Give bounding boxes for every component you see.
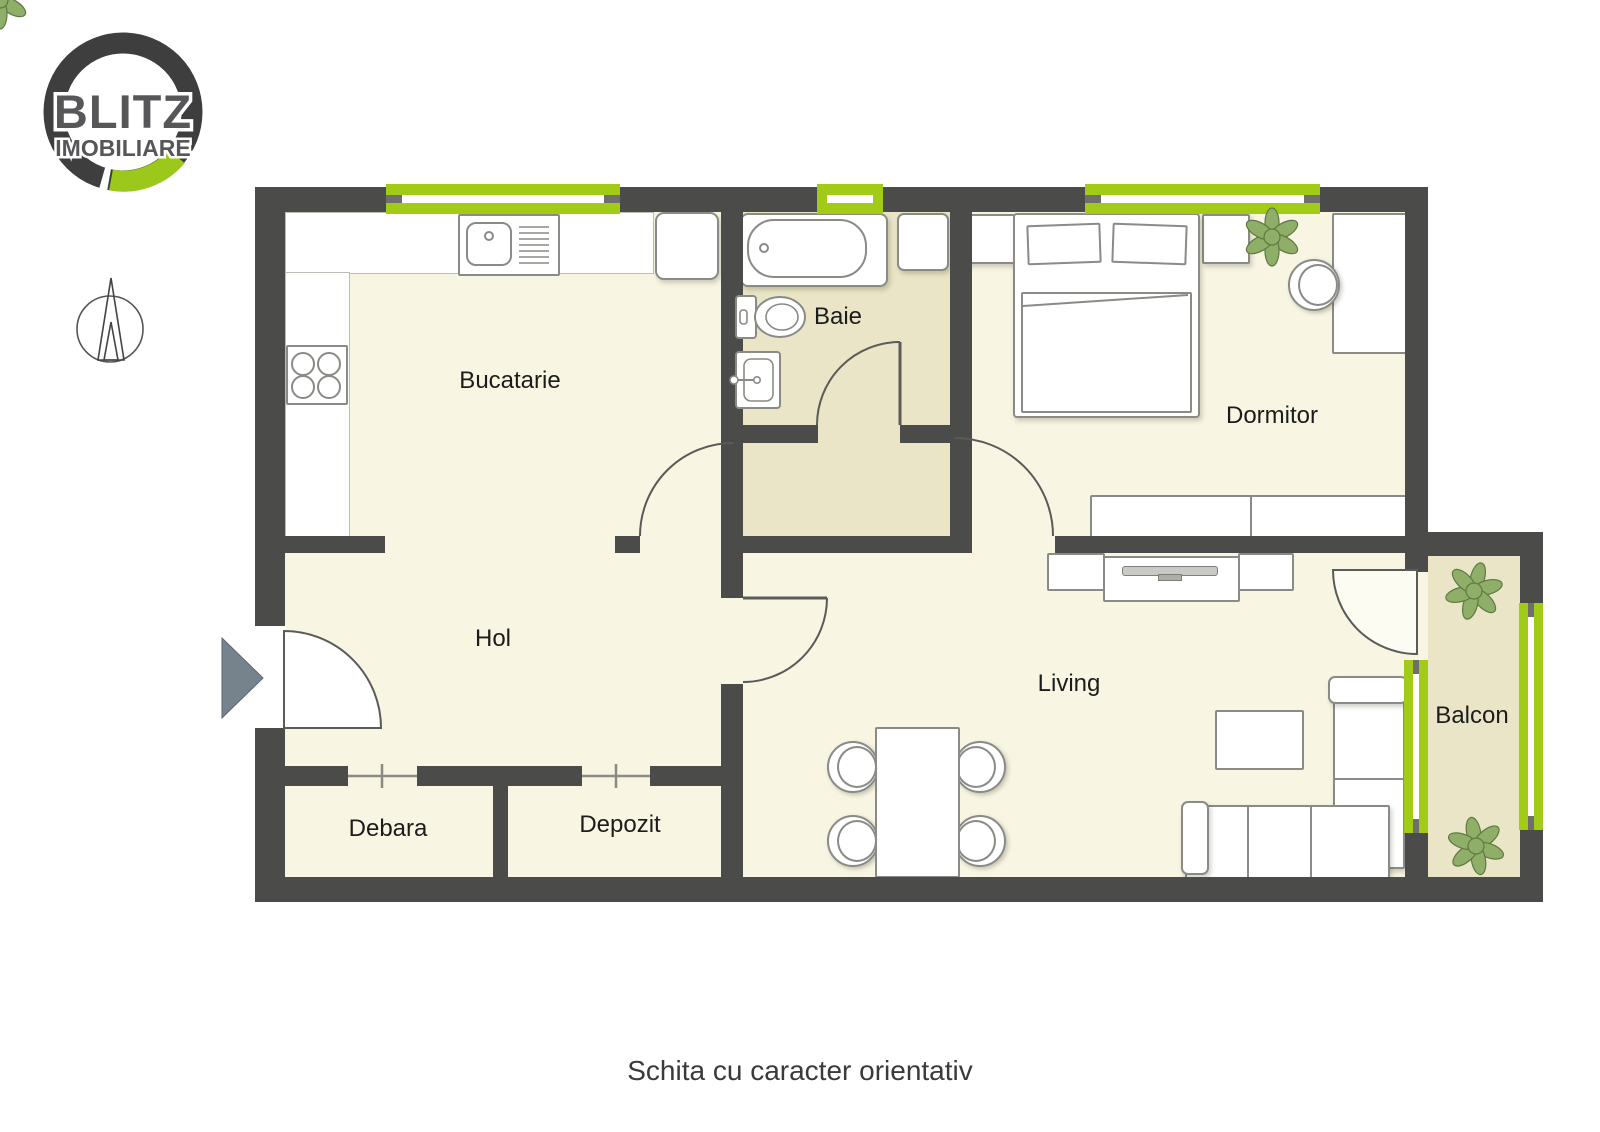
toilet [736, 296, 805, 338]
bathroom-door-arc [817, 342, 900, 425]
plant-balcony-bottom [1443, 812, 1509, 879]
label-debara: Debara [349, 815, 428, 843]
label-dormitor: Dormitor [1226, 402, 1318, 430]
entrance-door-swing [284, 631, 381, 728]
balcony-door-swing [1333, 570, 1417, 654]
living-door-arc [743, 598, 827, 682]
debara-sliding-opening [348, 764, 417, 788]
floor-plan-page: BLITZ IMOBILIARE [0, 0, 1600, 1132]
stove-burners [292, 353, 340, 398]
depozit-sliding-opening [582, 764, 650, 788]
plant-bedroom [1243, 208, 1300, 266]
bedroom-door-arc [955, 438, 1053, 536]
disclaimer-caption: Schita cu caracter orientativ [627, 1055, 973, 1087]
sink-drainboard [519, 227, 549, 263]
label-living: Living [1038, 670, 1101, 698]
sink-basin [467, 223, 511, 265]
entrance-arrow-icon [222, 638, 263, 718]
label-hol: Hol [475, 625, 511, 653]
blanket-fold-line [1023, 295, 1188, 306]
plant-icon [0, 0, 29, 29]
bathtub-drain [760, 244, 768, 252]
label-baie: Baie [814, 303, 862, 331]
hall-door-arc [640, 443, 733, 536]
detail-overlay [0, 0, 1600, 1132]
bathroom-sink [730, 352, 780, 408]
label-bucatarie: Bucatarie [459, 367, 560, 395]
label-balcon: Balcon [1435, 702, 1508, 730]
label-depozit: Depozit [579, 811, 660, 839]
bathtub-inner [748, 220, 866, 277]
plant-balcony-top [1439, 556, 1509, 627]
